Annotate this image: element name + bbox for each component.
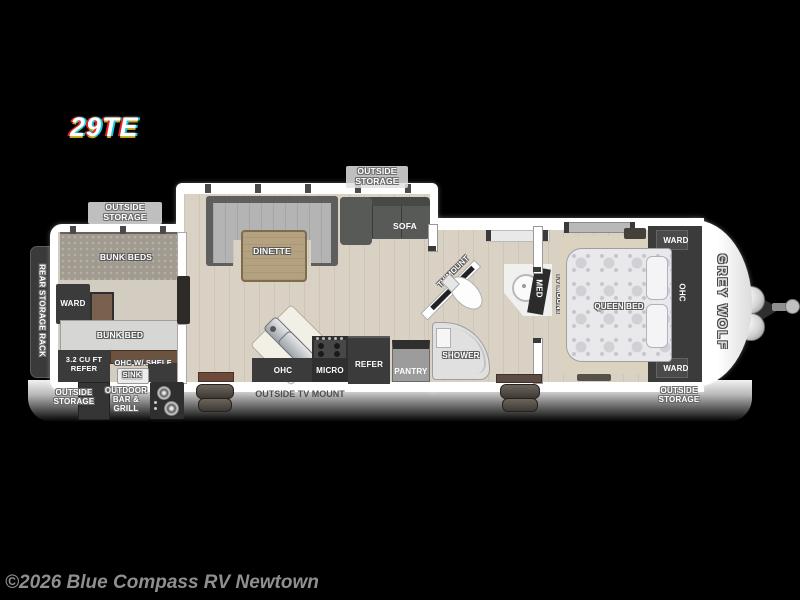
outside-storage-bottom-right-label: OUTSIDE STORAGE	[648, 386, 710, 404]
page-title: 29TE	[70, 112, 139, 143]
bunkroom-counter	[148, 364, 178, 382]
bedroom-floor-mat	[577, 374, 611, 381]
bunk-bed-label: BUNK BED	[80, 331, 160, 340]
refer-label: REFER	[348, 360, 390, 369]
outside-storage-bottom-left-label: OUTSIDE STORAGE	[40, 388, 108, 406]
mini-fridge-label: 3.2 CU FT REFER	[58, 356, 110, 373]
rear-storage-rack-label: REAR STORAGE RACK	[37, 246, 46, 376]
brand-label: GREY WOLF	[715, 247, 729, 357]
ward-bottom-label: WARD	[652, 364, 700, 373]
shower-label: SHOWER	[430, 352, 492, 361]
kitchen-ohc-label: OHC	[252, 366, 314, 375]
copyright-text: ©2026 Blue Compass RV Newtown	[5, 572, 319, 594]
shower-seat	[436, 328, 451, 348]
grill-burner	[157, 386, 171, 400]
entry-steps	[198, 398, 232, 412]
entry-door-mat	[198, 372, 234, 382]
sofa-chaise	[340, 197, 372, 245]
wardrobe-bunkroom-label: WARD	[56, 299, 90, 308]
micro-label: MICRO	[306, 366, 354, 375]
outside-storage-top-left-label: OUTSIDE STORAGE	[88, 202, 162, 224]
bunk-beds-label: BUNK BEDS	[86, 253, 166, 262]
sofa-label: SOFA	[380, 222, 430, 231]
bedroom-entry-steps	[500, 384, 540, 399]
grill-burner	[164, 401, 179, 416]
bedroom-door-mat	[496, 374, 542, 383]
pantry-label: PANTRY	[388, 367, 434, 376]
ward-top-label: WARD	[652, 236, 700, 245]
outside-storage-top-center-label: OUTSIDE STORAGE	[346, 166, 408, 188]
entry-steps	[196, 384, 234, 399]
queen-bed-label: QUEEN BED	[584, 303, 654, 312]
med-label: MED	[534, 274, 543, 304]
outdoor-bar-grill-label: OUTDOOR BAR & GRILL	[104, 386, 148, 414]
bedroom-entry-steps	[502, 398, 538, 412]
sofa-cushion-seam	[372, 206, 373, 238]
hitch-coupler	[785, 299, 800, 314]
bedside-shelf	[624, 228, 646, 239]
dinette-label: DINETTE	[236, 247, 308, 256]
kitchen-faucet	[270, 326, 276, 332]
bedroom-ohc-label: OHC	[677, 271, 686, 315]
partition-wall	[177, 232, 187, 278]
pillow	[646, 256, 668, 300]
outside-tv-mount-label: OUTSIDE TV MOUNT	[240, 389, 360, 399]
sink-label: SINK	[117, 371, 147, 379]
partition-wall	[177, 324, 187, 384]
pocket-door	[177, 276, 190, 324]
floorplan-image: 29TE REAR STORAGE RACK BUNK BEDS WARD BU…	[0, 0, 800, 600]
